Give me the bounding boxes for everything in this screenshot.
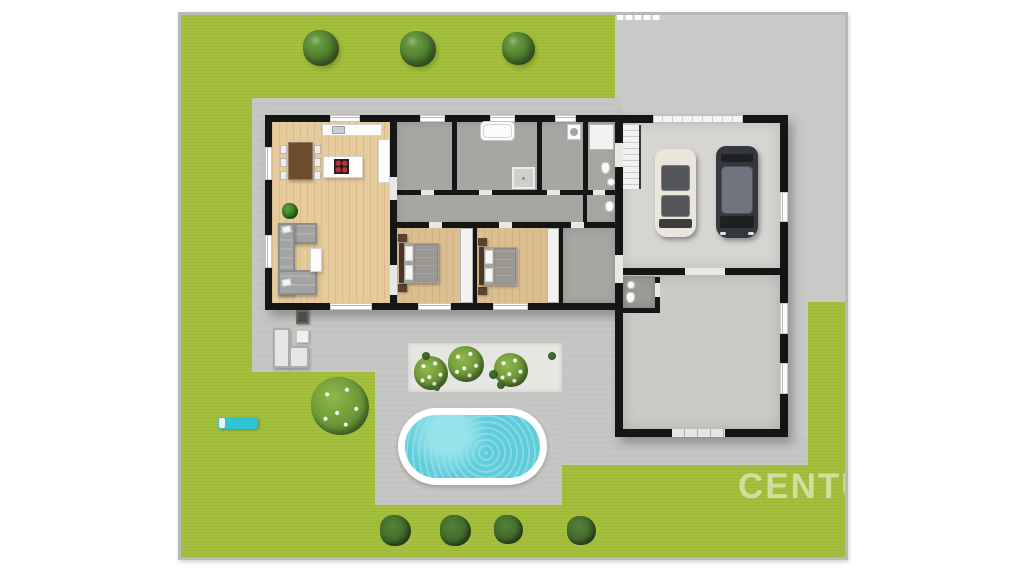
small-bush (434, 385, 440, 391)
small-bush (548, 352, 556, 360)
bush (494, 515, 523, 544)
bush (567, 516, 596, 545)
small-bush (489, 370, 498, 379)
bush (380, 515, 411, 546)
small-bush (497, 381, 505, 389)
flowering-bush (414, 356, 448, 390)
tree (400, 31, 436, 67)
watermark: CENTU (738, 467, 848, 507)
floor-plan-page: CENTU (0, 0, 1024, 576)
floor-plan-image: CENTU (178, 12, 848, 560)
tree (303, 30, 339, 66)
large-flowering-bush (311, 377, 369, 435)
tree (502, 32, 535, 65)
bush (440, 515, 471, 546)
small-bush (422, 352, 430, 360)
flowering-bush (448, 346, 484, 382)
